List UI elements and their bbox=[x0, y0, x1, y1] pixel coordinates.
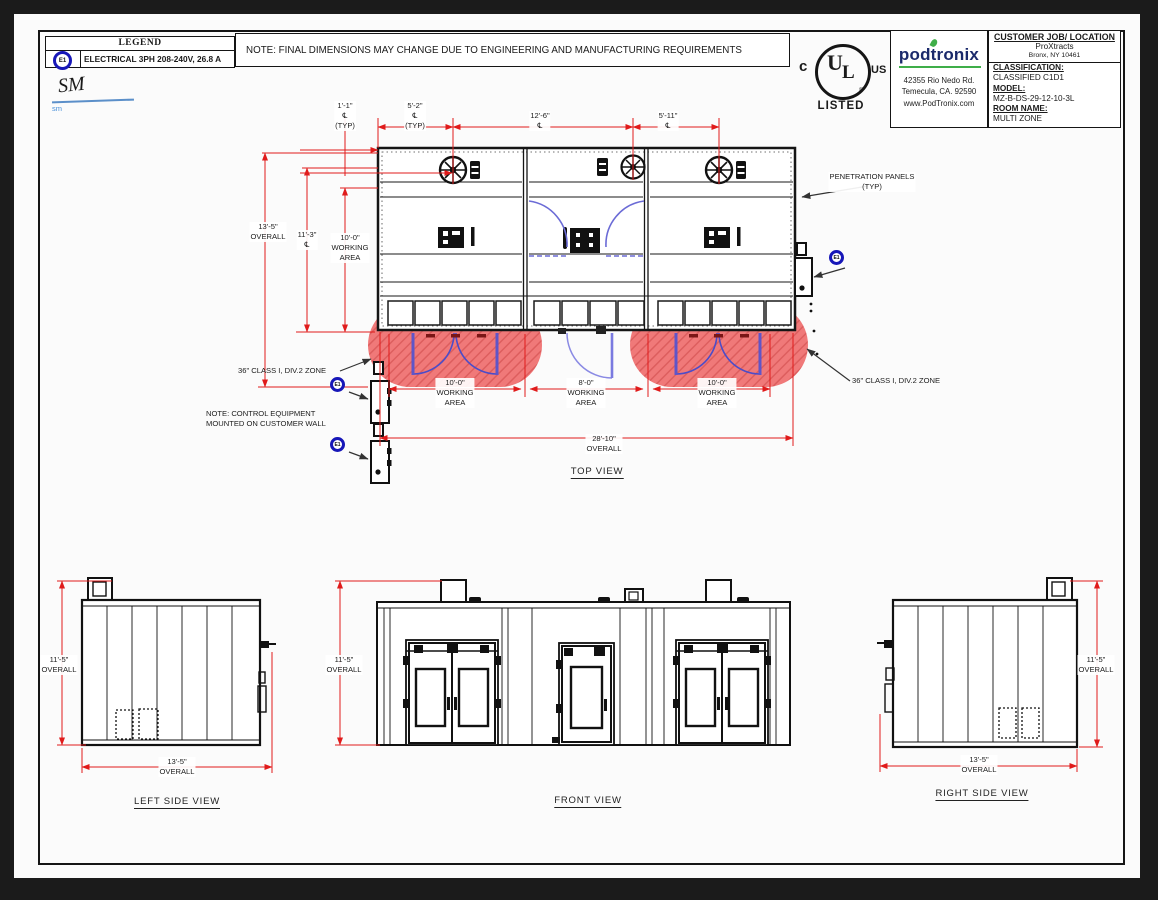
classification-value: CLASSIFIED C1D1 bbox=[989, 73, 1120, 83]
job-title-block: CUSTOMER JOB/ LOCATION ProXtracts Bronx,… bbox=[988, 30, 1121, 128]
model-label: MODEL: bbox=[993, 84, 1025, 93]
top-view-title: TOP VIEW bbox=[571, 466, 624, 479]
double-door-left bbox=[403, 640, 501, 745]
left-side-view-drawing bbox=[57, 578, 276, 773]
left-side-view-title: LEFT SIDE VIEW bbox=[134, 796, 220, 809]
classification-label: CLASSIFICATION: bbox=[993, 63, 1064, 72]
signature-annotation: sm bbox=[52, 104, 62, 113]
room-name-value: MULTI ZONE bbox=[989, 114, 1120, 124]
company-block: podtronix 42355 Rio Nedo Rd. Temecula, C… bbox=[890, 30, 988, 128]
ul-c: c bbox=[799, 58, 807, 75]
dim-fan-left: 5'-2" ℄ (TYP) bbox=[404, 101, 426, 131]
e1-callout: E1 bbox=[829, 250, 844, 265]
job-location: Bronx, NY 10461 bbox=[989, 52, 1120, 60]
room-name-label: ROOM NAME: bbox=[993, 104, 1048, 113]
legend-title: LEGEND bbox=[46, 37, 234, 51]
logo-underline bbox=[899, 66, 981, 68]
model-value: MZ-B-DS-29-12-10-3L bbox=[989, 94, 1120, 104]
top-note-box: NOTE: FINAL DIMENSIONS MAY CHANGE DUE TO… bbox=[235, 33, 790, 67]
company-logo: podtronix bbox=[891, 45, 987, 65]
zone-label-left: 36" CLASS I, DIV.2 ZONE bbox=[238, 366, 326, 376]
dim-width-overall: 28'-10" OVERALL bbox=[585, 434, 622, 454]
front-view-drawing bbox=[335, 580, 790, 745]
signature: SM bbox=[57, 73, 86, 99]
dim-width-right-view: 13'-5" OVERALL bbox=[960, 755, 997, 775]
ul-us: US bbox=[871, 64, 886, 76]
dim-height-left-view: 11'-5" OVERALL bbox=[40, 655, 77, 675]
job-header: CUSTOMER JOB/ LOCATION bbox=[989, 31, 1120, 42]
dim-depth-centerline: 11'-3" ℄ bbox=[297, 230, 318, 250]
single-door-middle bbox=[552, 643, 614, 745]
legend-box: LEGEND ELECTRICAL 3PH 208-240V, 26.8 A bbox=[45, 36, 235, 68]
dim-working-right: 10'-0" WORKING AREA bbox=[697, 378, 736, 408]
penetration-panels-label: PENETRATION PANELS (TYP) bbox=[829, 172, 916, 192]
top-view-drawing bbox=[258, 118, 868, 483]
dim-width-left-view: 13'-5" OVERALL bbox=[158, 757, 195, 777]
dim-working-mid: 8'-0" WORKING AREA bbox=[566, 378, 605, 408]
dim-fan-mid: 12'-6" ℄ bbox=[529, 111, 550, 131]
ul-listed-text: LISTED bbox=[793, 100, 889, 112]
company-address: 42355 Rio Nedo Rd. Temecula, CA. 92590 w… bbox=[891, 75, 987, 109]
control-equipment-note: NOTE: CONTROL EQUIPMENT MOUNTED ON CUSTO… bbox=[206, 409, 326, 429]
dim-fan-right: 5'-11" ℄ bbox=[658, 111, 679, 131]
drawing-viewport: LEGEND ELECTRICAL 3PH 208-240V, 26.8 A E… bbox=[0, 0, 1158, 900]
dim-depth-working: 10'-0" WORKING AREA bbox=[330, 233, 369, 263]
filter-band bbox=[388, 301, 791, 325]
top-note-text: NOTE: FINAL DIMENSIONS MAY CHANGE DUE TO… bbox=[246, 45, 742, 56]
right-side-view-drawing bbox=[877, 578, 1103, 772]
ul-registered: ® bbox=[859, 88, 863, 94]
dim-working-left: 10'-0" WORKING AREA bbox=[435, 378, 474, 408]
ul-listed-mark: c U L US ® LISTED bbox=[793, 42, 889, 118]
e1-electrical-icon: E1 bbox=[53, 51, 72, 70]
dim-height-front-view: 11'-5" OVERALL bbox=[325, 655, 362, 675]
e1-callout: E1 bbox=[330, 377, 345, 392]
dim-depth-overall: 13'-5" OVERALL bbox=[249, 222, 286, 242]
legend-entry: ELECTRICAL 3PH 208-240V, 26.8 A bbox=[80, 50, 234, 67]
right-side-view-title: RIGHT SIDE VIEW bbox=[935, 788, 1028, 801]
dim-height-right-view: 11'-5" OVERALL bbox=[1077, 655, 1114, 675]
front-view-title: FRONT VIEW bbox=[554, 795, 621, 808]
double-door-right bbox=[673, 640, 771, 745]
dim-fan-offset: 1'-1" ℄ (TYP) bbox=[334, 101, 356, 131]
e1-callout: E1 bbox=[330, 437, 345, 452]
job-customer: ProXtracts bbox=[989, 42, 1120, 52]
zone-label-right: 36" CLASS I, DIV.2 ZONE bbox=[852, 376, 940, 386]
